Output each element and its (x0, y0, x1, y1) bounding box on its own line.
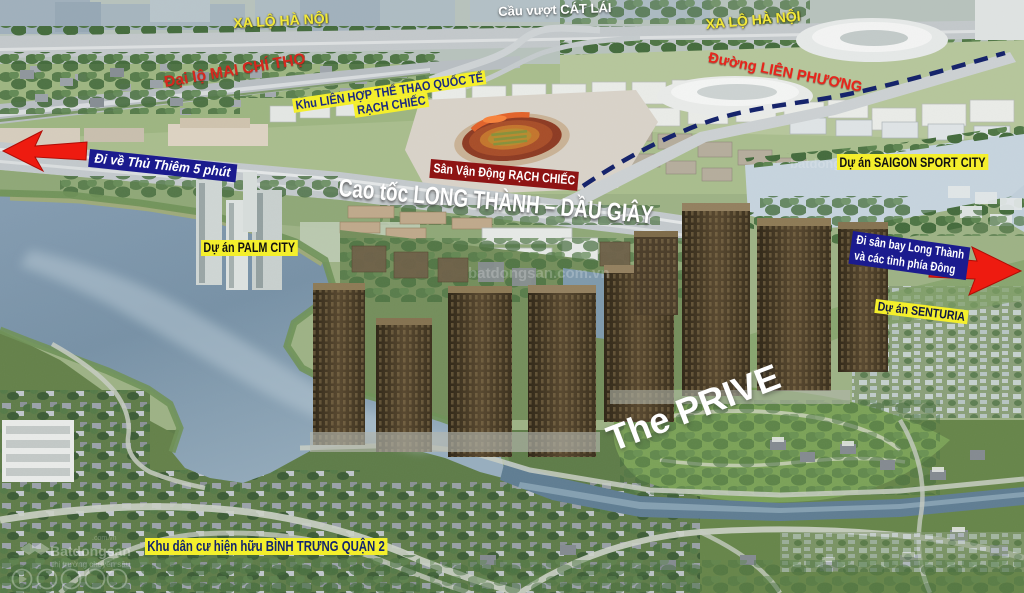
svg-text:batdongsan.com.vn: batdongsan.com.vn (468, 265, 610, 282)
svg-text:thị trường chuyên sâu: thị trường chuyên sâu (52, 560, 130, 569)
svg-text:.com.vn: .com.vn (92, 535, 117, 542)
svg-text:Batdongsan: Batdongsan (50, 543, 131, 559)
